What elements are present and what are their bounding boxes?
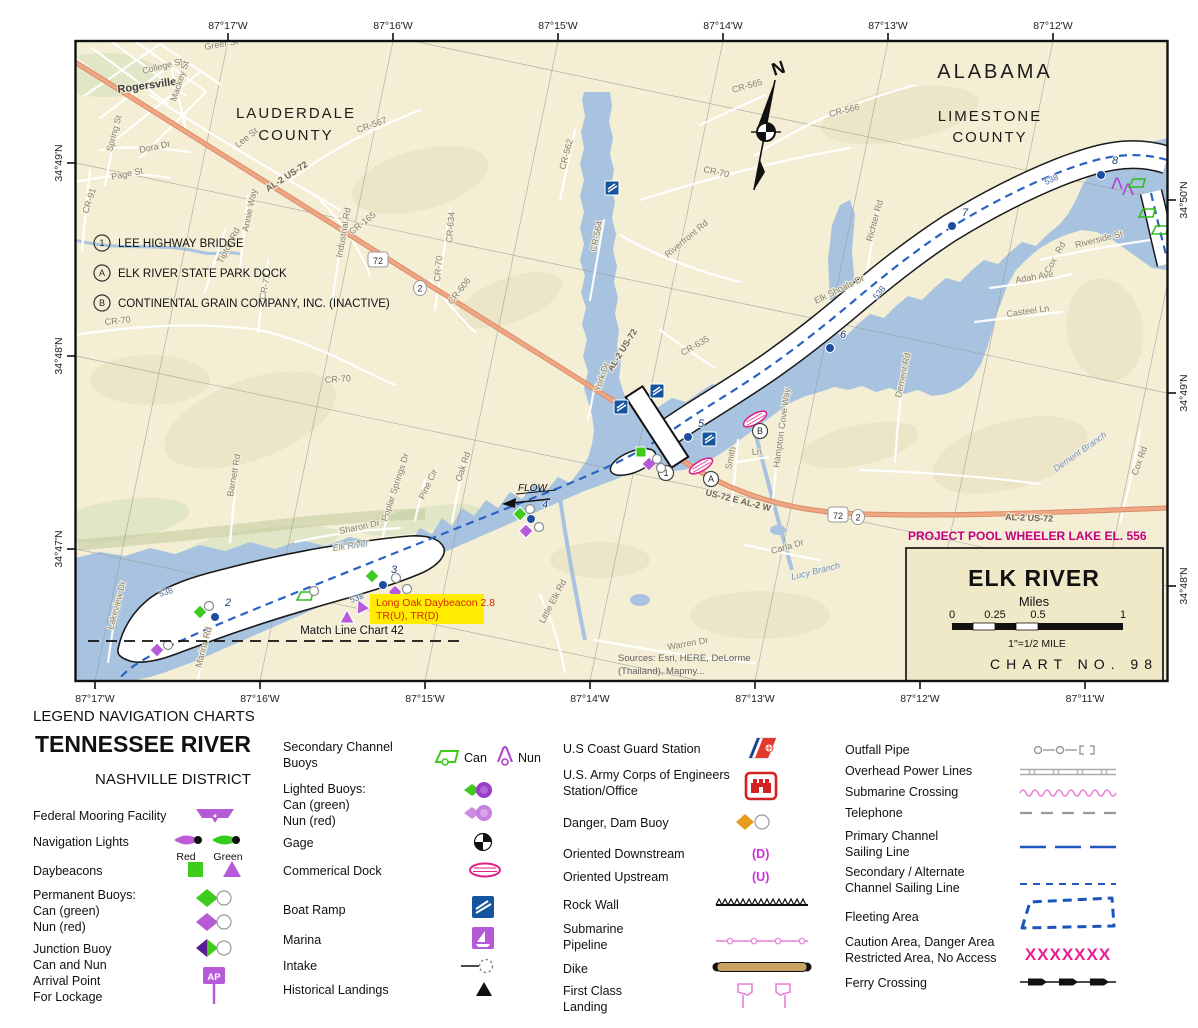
legend-first-class-line1: First Class	[563, 984, 622, 998]
legend-lighted-line2: Can (green)	[283, 798, 350, 812]
coord-top-5: 87°12'W	[1033, 20, 1073, 32]
daybeacon-square-symbol	[188, 862, 203, 877]
mile-marker-dot	[684, 433, 693, 442]
keynote-marker-1: 1	[99, 238, 104, 248]
legend-can-green-label: Can (green)	[33, 904, 100, 918]
navigation-light-green-icon	[212, 836, 240, 845]
scale-tick-0: 0	[949, 609, 955, 621]
county-lauderdale-line2: COUNTY	[258, 127, 333, 144]
legend-section: LEGEND NAVIGATION CHARTS TENNESSEE RIVER…	[33, 708, 1116, 1014]
legend-usace-line1: U.S. Army Corps of Engineers	[563, 768, 730, 782]
usace-station-icon	[746, 773, 776, 799]
permanent-buoy-can-symbol	[196, 889, 231, 907]
legend-secondary-alt-line2: Channel Sailing Line	[845, 881, 960, 895]
gage-symbol	[475, 834, 492, 851]
legend-danger-label: Danger, Dam Buoy	[563, 816, 669, 830]
chart-canvas: 1 A B 72 72 2 2 2345678 538538538538 Rog…	[0, 0, 1198, 1028]
boat-ramp-symbol	[472, 896, 494, 918]
caution-area-symbol: XXXXXXX	[1025, 945, 1111, 964]
coord-bottom-2: 87°15'W	[405, 693, 445, 705]
legend-oriented-down-label: Oriented Downstream	[563, 847, 685, 861]
legend-permanent-buoys-label: Permanent Buoys:	[33, 888, 136, 902]
legend-first-class-line2: Landing	[563, 1000, 608, 1014]
permanent-buoy-nun-symbol	[196, 913, 231, 931]
legend-marina-label: Marina	[283, 933, 321, 947]
danger-dam-buoy-symbol	[736, 814, 769, 830]
legend-submarine-crossing-label: Submarine Crossing	[845, 785, 958, 799]
callout-line1: Long Oak Daybeacon 2.8	[376, 597, 495, 609]
buoy-circle-icon	[535, 523, 544, 532]
keynote-marker-b: B	[99, 298, 105, 308]
county-limestone-line1: LIMESTONE	[938, 108, 1042, 125]
mile-marker-label: 3	[391, 564, 398, 576]
legend-junction-line1: Junction Buoy	[33, 942, 112, 956]
coord-left-0: 34°49'N	[53, 144, 65, 181]
secondary-can-symbol	[436, 751, 458, 765]
coord-top-4: 87°13'W	[868, 20, 908, 32]
daybeacon-callout: Long Oak Daybeacon 2.8 TR(U), TR(D)	[370, 594, 495, 624]
scale-bar	[952, 623, 1123, 630]
legend-navigation-lights-label: Navigation Lights	[33, 835, 129, 849]
historical-landing-symbol	[476, 982, 492, 996]
al2-shield-label: 2	[855, 513, 860, 523]
scale-tick-05: 0.5	[1030, 609, 1045, 621]
legend-nun-label: Nun	[518, 751, 541, 765]
legend-lighted-line1: Lighted Buoys:	[283, 782, 366, 796]
buoy-circle-icon	[205, 602, 214, 611]
ferry-crossing-symbol	[1020, 979, 1116, 986]
lighted-buoy-nun-symbol	[464, 805, 492, 821]
legend-arrival-line2: For Lockage	[33, 990, 103, 1004]
legend-gage-label: Gage	[283, 836, 314, 850]
al2-shield-label: 2	[417, 284, 422, 294]
us72-shield-label: 72	[833, 511, 843, 521]
us72-shield-label: 72	[373, 256, 383, 266]
title-box: ELK RIVER Miles 0 0.25 0.5 1 1"=1/2 MILE…	[906, 548, 1163, 681]
coord-top-2: 87°15'W	[538, 20, 578, 32]
legend-ferry-label: Ferry Crossing	[845, 976, 927, 990]
mile-marker-dot	[379, 581, 388, 590]
legend-telephone-label: Telephone	[845, 806, 903, 820]
buoy-circle-icon	[657, 464, 666, 473]
project-pool-label: PROJECT POOL WHEELER LAKE EL. 556	[908, 529, 1147, 543]
coord-bottom-4: 87°13'W	[735, 693, 775, 705]
legend-uscg-label: U.S Coast Guard Station	[563, 742, 701, 756]
scale-tick-025: 0.25	[984, 609, 1005, 621]
marker-b: B	[757, 426, 763, 436]
marker-a: A	[708, 474, 714, 484]
commercial-dock-symbol	[470, 864, 500, 877]
road-label: CR-70	[324, 373, 351, 385]
legend-fleeting-label: Fleeting Area	[845, 910, 919, 924]
legend-usace-line2: Station/Office	[563, 784, 638, 798]
county-limestone-line2: COUNTY	[952, 129, 1027, 146]
legend-overhead-label: Overhead Power Lines	[845, 764, 972, 778]
mile-marker-label: 6	[840, 329, 847, 341]
oriented-downstream-symbol: (D)	[752, 847, 769, 861]
title-box-name: ELK RIVER	[968, 565, 1100, 591]
buoy-circle-icon	[653, 455, 662, 464]
outfall-pipe-symbol	[1035, 746, 1095, 754]
buoy-circle-icon	[526, 505, 535, 514]
navigation-chart-page: 1 A B 72 72 2 2 2345678 538538538538 Rog…	[0, 0, 1198, 1028]
sources-line2: (Thailand), Mapmy...	[618, 666, 704, 677]
keynote-text-a: ELK RIVER STATE PARK DOCK	[118, 268, 287, 280]
oriented-upstream-symbol: (U)	[752, 870, 769, 884]
junction-buoy-symbol	[196, 939, 231, 957]
dike-symbol	[713, 963, 812, 972]
coord-top-3: 87°14'W	[703, 20, 743, 32]
scale-note: 1"=1/2 MILE	[1008, 638, 1066, 650]
callout-line2: TR(U), TR(D)	[376, 610, 439, 622]
legend-junction-line2: Can and Nun	[33, 958, 107, 972]
coord-right-1: 34°49'N	[1178, 374, 1190, 411]
legend-federal-mooring-label: Federal Mooring Facility	[33, 809, 167, 823]
rock-wall-symbol	[716, 899, 808, 905]
mile-marker-label: 4	[542, 499, 548, 511]
keynote-marker-a: A	[99, 268, 105, 278]
mile-marker-label: 2	[224, 597, 231, 609]
coord-bottom-6: 87°11'W	[1066, 693, 1105, 705]
legend-arrival-line1: Arrival Point	[33, 974, 101, 988]
fleeting-area-symbol	[1022, 898, 1114, 928]
legend-dike-label: Dike	[563, 962, 588, 976]
coord-left-2: 34°47'N	[53, 530, 65, 567]
map-area: 1 A B 72 72 2 2 2345678 538538538538 Rog…	[48, 0, 1198, 779]
lighted-buoy-can-symbol	[464, 782, 492, 798]
secondary-nun-symbol	[498, 747, 512, 765]
state-alabama: ALABAMA	[937, 61, 1052, 83]
green-daybeacon-icon	[636, 447, 646, 457]
federal-mooring-symbol	[196, 809, 234, 823]
keynote-text-1: LEE HIGHWAY BRIDGE	[118, 238, 244, 250]
scale-units: Miles	[1019, 594, 1050, 609]
legend-red-label: Red	[176, 851, 195, 863]
legend-header: LEGEND NAVIGATION CHARTS	[33, 708, 255, 725]
legend-submarine-line2: Pipeline	[563, 938, 608, 952]
legend-secondary-buoys-line2: Buoys	[283, 756, 318, 770]
legend-lighted-line3: Nun (red)	[283, 814, 336, 828]
mile-marker-dot	[948, 222, 957, 231]
keynote-text-b: CONTINENTAL GRAIN COMPANY, INC. (INACTIV…	[118, 298, 390, 310]
mile-marker-dot	[527, 515, 536, 524]
road-label: Ln	[751, 446, 762, 457]
mile-marker-dot	[211, 613, 220, 622]
legend-secondary-buoys-line1: Secondary Channel	[283, 740, 393, 754]
navigation-light-red-icon	[174, 836, 202, 845]
legend-commercial-dock-label: Commerical Dock	[283, 864, 382, 878]
legend-intake-label: Intake	[283, 959, 317, 973]
legend-can-label: Can	[464, 751, 487, 765]
legend-subtitle: NASHVILLE DISTRICT	[95, 771, 251, 788]
coord-bottom-5: 87°12'W	[900, 693, 940, 705]
first-class-landing-symbol	[738, 984, 790, 1008]
marina-symbol	[472, 927, 494, 949]
match-line-label: Match Line Chart 42	[300, 625, 404, 637]
coord-top-1: 87°16'W	[373, 20, 413, 32]
county-lauderdale-line1: LAUDERDALE	[236, 105, 356, 122]
legend-title: TENNESSEE RIVER	[35, 731, 251, 757]
legend-outfall-label: Outfall Pipe	[845, 743, 910, 757]
coord-left-1: 34°48'N	[53, 337, 65, 374]
arrival-point-symbol: AP	[203, 967, 225, 1004]
coord-top-0: 87°17'W	[208, 20, 248, 32]
submarine-pipeline-symbol	[716, 938, 808, 944]
coord-right-2: 34°48'N	[1178, 567, 1190, 604]
legend-caution-line2: Restricted Area, No Access	[845, 951, 996, 965]
scale-tick-1: 1	[1120, 609, 1126, 621]
coord-bottom-3: 87°14'W	[570, 693, 610, 705]
legend-nun-red-label: Nun (red)	[33, 920, 86, 934]
overhead-power-symbol	[1020, 769, 1116, 774]
uscg-station-icon	[749, 738, 776, 758]
mile-marker-dot	[826, 344, 835, 353]
legend-primary-line2: Sailing Line	[845, 845, 910, 859]
mile-marker-label: 8	[1112, 155, 1119, 167]
legend-boat-ramp-label: Boat Ramp	[283, 903, 346, 917]
ap-label: AP	[207, 972, 221, 983]
legend-submarine-line1: Submarine	[563, 922, 623, 936]
buoy-circle-icon	[403, 585, 412, 594]
legend-green-label: Green	[213, 851, 242, 863]
mile-marker-label: 7	[962, 207, 969, 219]
mile-marker-dot	[1097, 171, 1106, 180]
mile-marker-label: 5	[698, 418, 705, 430]
submarine-crossing-symbol	[1020, 790, 1116, 796]
chart-number: CHART NO. 98	[990, 656, 1158, 672]
legend-primary-line1: Primary Channel	[845, 829, 938, 843]
legend-rock-wall-label: Rock Wall	[563, 898, 619, 912]
buoy-circle-icon	[310, 587, 319, 596]
sources-line1: Sources: Esri, HERE, DeLorme	[618, 653, 751, 664]
legend-historical-landings-label: Historical Landings	[283, 983, 389, 997]
road-label: AL-2 US-72	[1005, 512, 1053, 524]
legend-caution-line1: Caution Area, Danger Area	[845, 935, 994, 949]
coord-right-0: 34°50'N	[1178, 181, 1190, 218]
legend-oriented-up-label: Oriented Upstream	[563, 870, 669, 884]
coord-bottom-0: 87°17'W	[75, 693, 115, 705]
daybeacon-triangle-symbol	[223, 861, 241, 877]
legend-secondary-alt-line1: Secondary / Alternate	[845, 865, 965, 879]
intake-symbol	[461, 960, 493, 973]
legend-daybeacons-label: Daybeacons	[33, 864, 103, 878]
coord-bottom-1: 87°16'W	[240, 693, 280, 705]
